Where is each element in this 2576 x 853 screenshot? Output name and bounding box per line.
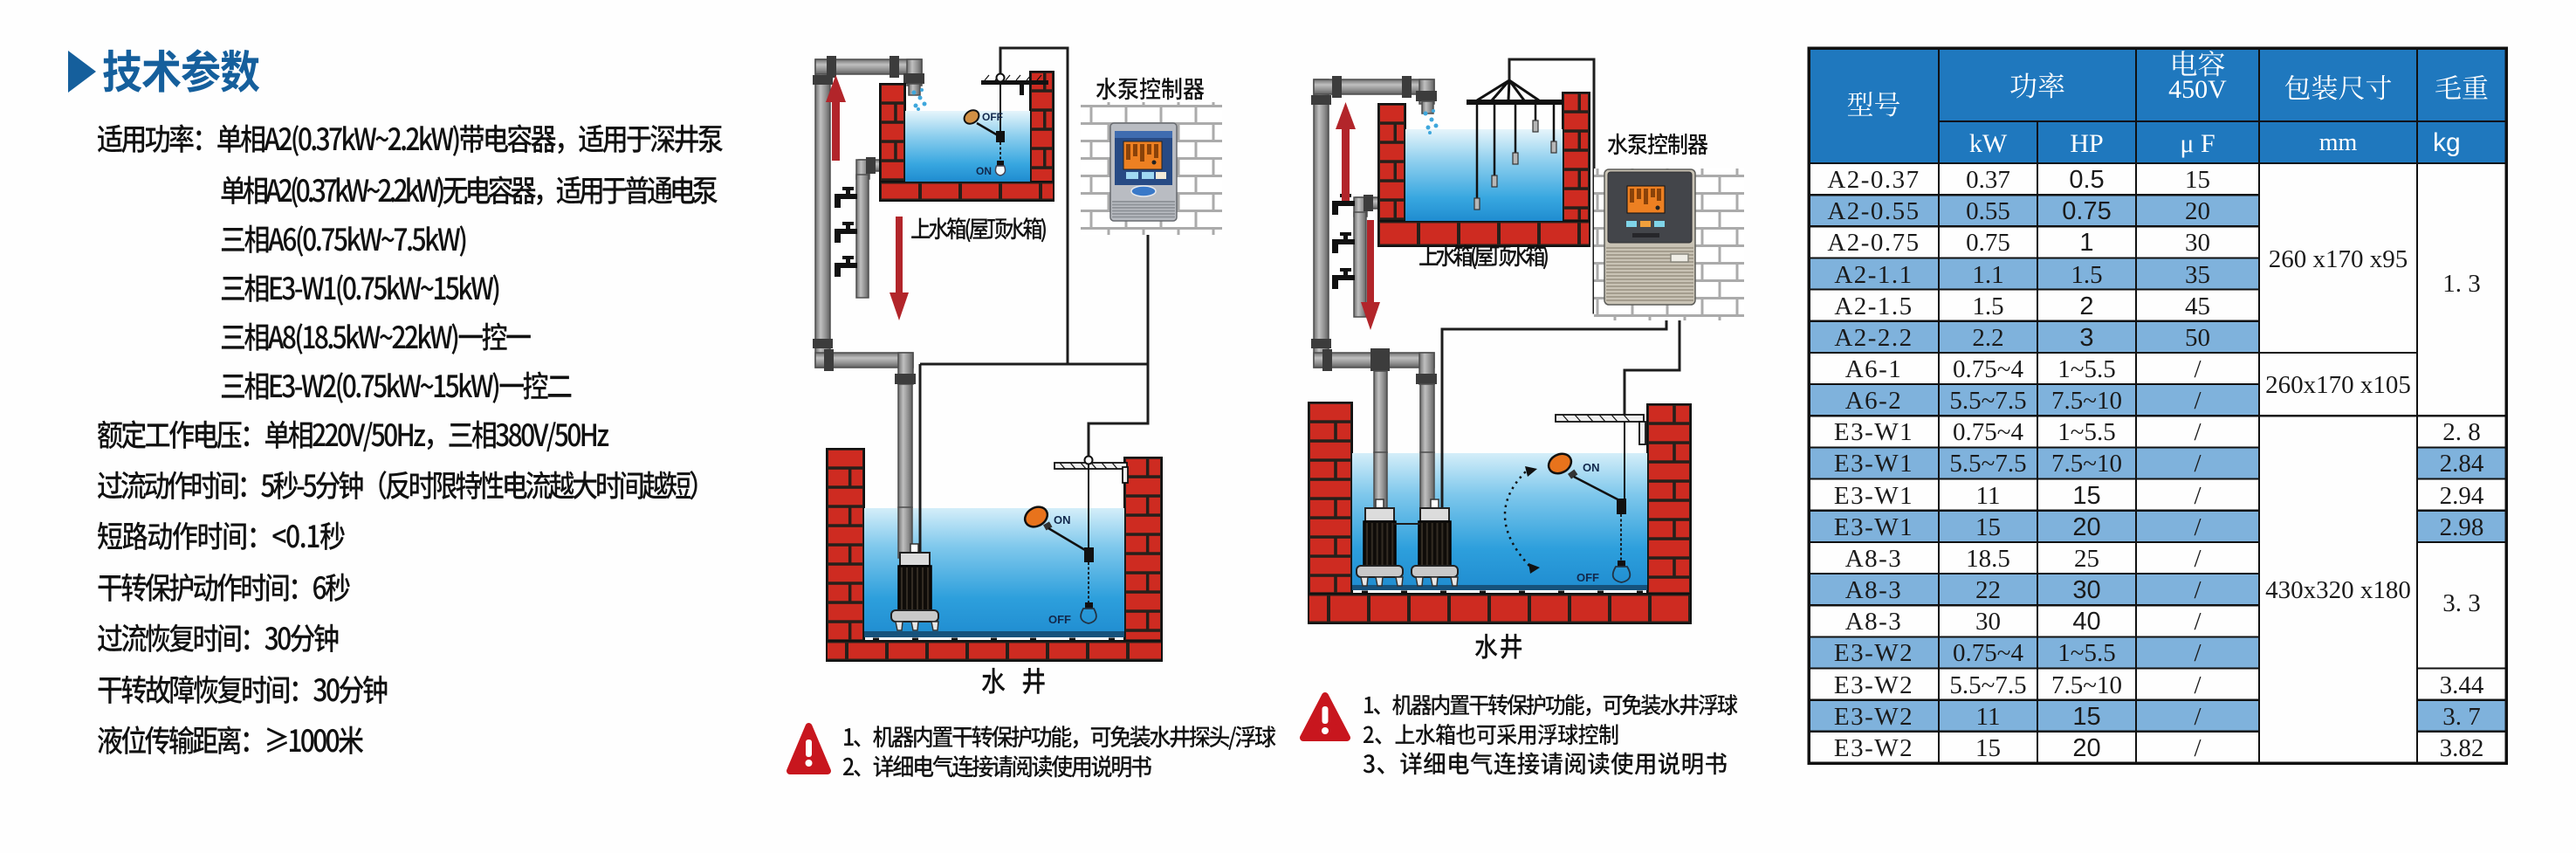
svg-text:1: 1 (2079, 229, 2093, 257)
svg-text:/: / (2194, 639, 2202, 667)
svg-text:22: 22 (1975, 576, 2001, 604)
svg-text:OFF: OFF (982, 111, 1003, 123)
svg-text:30: 30 (1975, 608, 2001, 636)
svg-text:2.84: 2.84 (2440, 450, 2484, 478)
svg-text:/: / (2194, 513, 2202, 541)
svg-text:HP: HP (2070, 129, 2103, 158)
svg-text:/: / (2194, 734, 2202, 762)
svg-text:OFF: OFF (1048, 613, 1071, 626)
svg-text:mm: mm (2319, 129, 2358, 156)
svg-text:5.5~7.5: 5.5~7.5 (1949, 671, 2026, 699)
svg-text:A8-3: A8-3 (1845, 608, 1903, 636)
svg-text:3.44: 3.44 (2440, 671, 2484, 699)
svg-text:0.75: 0.75 (2062, 197, 2111, 225)
svg-text:E3-W1: E3-W1 (1834, 418, 1913, 446)
svg-text:A8-3: A8-3 (1845, 545, 1903, 573)
svg-text:1~5.5: 1~5.5 (2057, 355, 2115, 383)
svg-text:7.5~10: 7.5~10 (2051, 387, 2122, 415)
svg-text:0.75~4: 0.75~4 (1953, 418, 2023, 446)
svg-text:18.5: 18.5 (1966, 545, 2010, 573)
svg-text:0.75: 0.75 (1966, 229, 2010, 257)
svg-text:A6-2: A6-2 (1845, 387, 1903, 415)
svg-text:1~5.5: 1~5.5 (2057, 418, 2115, 446)
svg-text:260x170 x105: 260x170 x105 (2265, 371, 2411, 399)
svg-text:A2-0.55: A2-0.55 (1827, 197, 1920, 225)
svg-text:7.5~10: 7.5~10 (2051, 671, 2122, 699)
svg-text:2.98: 2.98 (2440, 513, 2484, 541)
svg-text:A2-1.1: A2-1.1 (1834, 261, 1913, 289)
svg-text:/: / (2194, 355, 2202, 383)
svg-text:45: 45 (2185, 292, 2210, 320)
svg-text:/: / (2194, 545, 2202, 573)
svg-text:5.5~7.5: 5.5~7.5 (1949, 450, 2026, 478)
svg-text:3: 3 (2079, 324, 2093, 352)
svg-text:2. 8: 2. 8 (2442, 418, 2481, 446)
svg-text:E3-W1: E3-W1 (1834, 513, 1913, 541)
svg-text:5.5~7.5: 5.5~7.5 (1949, 387, 2026, 415)
svg-text:3.82: 3.82 (2440, 734, 2484, 762)
svg-text:/: / (2194, 482, 2202, 510)
svg-text:0.37: 0.37 (1966, 166, 2010, 194)
svg-text:A2-2.2: A2-2.2 (1834, 324, 1913, 352)
svg-text:0.75~4: 0.75~4 (1953, 355, 2023, 383)
svg-text:2.2: 2.2 (1972, 324, 2003, 352)
svg-text:E3-W2: E3-W2 (1834, 734, 1913, 762)
svg-text:15: 15 (2072, 703, 2100, 731)
svg-text:A8-3: A8-3 (1845, 576, 1903, 604)
svg-text:20: 20 (2072, 734, 2100, 762)
svg-text:A2-0.75: A2-0.75 (1827, 229, 1920, 257)
svg-text:ON: ON (1054, 513, 1071, 526)
svg-text:/: / (2194, 576, 2202, 604)
svg-text:μ F: μ F (2180, 129, 2215, 158)
svg-text:E3-W2: E3-W2 (1834, 671, 1913, 699)
svg-text:A2-1.5: A2-1.5 (1834, 292, 1913, 320)
svg-text:2.94: 2.94 (2440, 482, 2484, 510)
svg-text:/: / (2194, 608, 2202, 636)
svg-text:260 x170 x95: 260 x170 x95 (2269, 245, 2408, 273)
svg-text:E3-W2: E3-W2 (1834, 703, 1913, 731)
svg-text:40: 40 (2072, 608, 2100, 636)
svg-text:50: 50 (2185, 324, 2210, 352)
svg-text:0.75~4: 0.75~4 (1953, 639, 2023, 667)
svg-text:E3-W1: E3-W1 (1834, 450, 1913, 478)
svg-text:20: 20 (2072, 513, 2100, 541)
svg-text:A6-1: A6-1 (1845, 355, 1903, 383)
svg-text:0.55: 0.55 (1966, 197, 2010, 225)
svg-text:A2-0.37: A2-0.37 (1827, 166, 1920, 194)
svg-text:1~5.5: 1~5.5 (2057, 639, 2115, 667)
svg-text:0.5: 0.5 (2069, 166, 2104, 194)
svg-text:/: / (2194, 418, 2202, 446)
svg-text:3. 3: 3. 3 (2442, 589, 2481, 617)
svg-text:1.1: 1.1 (1972, 261, 2003, 289)
svg-text:7.5~10: 7.5~10 (2051, 450, 2122, 478)
svg-text:ON: ON (1583, 461, 1600, 474)
svg-text:kg: kg (2433, 128, 2461, 157)
svg-text:25: 25 (2074, 545, 2099, 573)
svg-text:11: 11 (1976, 482, 2001, 510)
svg-text:15: 15 (1975, 734, 2001, 762)
svg-text:30: 30 (2185, 229, 2210, 257)
svg-text:/: / (2194, 703, 2202, 731)
svg-text:E3-W1: E3-W1 (1834, 482, 1913, 510)
svg-text:E3-W2: E3-W2 (1834, 639, 1913, 667)
svg-text:2: 2 (2079, 292, 2093, 320)
svg-text:/: / (2194, 450, 2202, 478)
svg-text:kW: kW (1969, 129, 2008, 158)
svg-text:11: 11 (1976, 703, 2001, 731)
svg-text:ON: ON (976, 165, 992, 177)
svg-text:OFF: OFF (1577, 571, 1599, 584)
svg-text:30: 30 (2072, 576, 2100, 604)
svg-text:20: 20 (2185, 197, 2210, 225)
svg-text:15: 15 (1975, 513, 2001, 541)
svg-text:450V: 450V (2168, 75, 2227, 104)
svg-text:3. 7: 3. 7 (2442, 703, 2481, 731)
svg-text:35: 35 (2185, 261, 2210, 289)
svg-text:15: 15 (2185, 166, 2210, 194)
svg-text:15: 15 (2072, 482, 2100, 510)
svg-text:1.5: 1.5 (1972, 292, 2003, 320)
svg-text:430x320 x180: 430x320 x180 (2265, 576, 2411, 604)
svg-text:1. 3: 1. 3 (2442, 270, 2481, 298)
svg-text:1.5: 1.5 (2071, 261, 2102, 289)
svg-text:/: / (2194, 671, 2202, 699)
svg-text:/: / (2194, 387, 2202, 415)
